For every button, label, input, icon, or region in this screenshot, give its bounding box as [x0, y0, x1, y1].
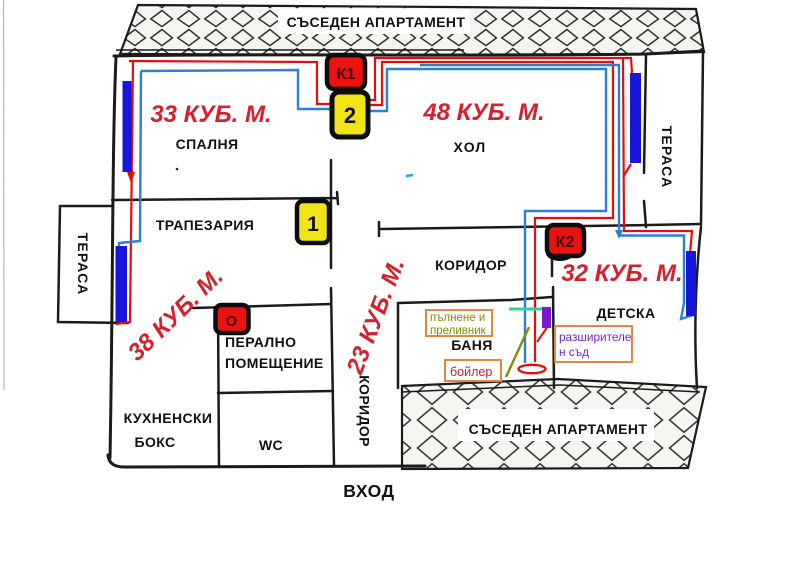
svg-text:КУХНЕНСКИ: КУХНЕНСКИ — [124, 410, 213, 426]
svg-text:СЪСЕДЕН АПАРТАМЕНТ: СЪСЕДЕН АПАРТАМЕНТ — [469, 421, 648, 437]
svg-text:ТРАПЕЗАРИЯ: ТРАПЕЗАРИЯ — [156, 217, 254, 233]
svg-text:К1: К1 — [337, 66, 356, 83]
svg-text:СПАЛНЯ: СПАЛНЯ — [176, 136, 239, 152]
svg-text:ТЕРАСА: ТЕРАСА — [659, 126, 675, 189]
svg-text:32 КУБ. М.: 32 КУБ. М. — [561, 260, 682, 287]
svg-text:WC: WC — [259, 437, 283, 453]
svg-text:К2: К2 — [556, 234, 575, 251]
svg-text:н съд: н съд — [559, 345, 589, 359]
svg-text:разширителе: разширителе — [559, 330, 632, 344]
svg-text:бойлер: бойлер — [450, 365, 492, 379]
svg-text:1: 1 — [307, 213, 319, 236]
svg-text:ПЕРАЛНО: ПЕРАЛНО — [225, 334, 296, 350]
svg-text:33 КУБ. М.: 33 КУБ. М. — [150, 101, 271, 128]
svg-text:48 КУБ. М.: 48 КУБ. М. — [422, 99, 544, 126]
svg-text:ВХОД: ВХОД — [343, 481, 394, 501]
svg-text:СЪСЕДЕН АПАРТАМЕНТ: СЪСЕДЕН АПАРТАМЕНТ — [287, 14, 466, 30]
svg-text:2: 2 — [344, 103, 356, 128]
svg-text:ХОЛ: ХОЛ — [454, 139, 487, 155]
svg-text:БАНЯ: БАНЯ — [451, 337, 492, 353]
svg-text:ТЕРАСА: ТЕРАСА — [75, 233, 91, 296]
svg-text:ДЕТСКА: ДЕТСКА — [596, 305, 655, 321]
svg-text:КОРИДОР: КОРИДОР — [357, 375, 373, 447]
svg-text:КОРИДОР: КОРИДОР — [435, 257, 507, 273]
svg-text:О: О — [226, 313, 238, 330]
svg-text:БОКС: БОКС — [134, 434, 175, 450]
svg-text:ПОМЕЩЕНИЕ: ПОМЕЩЕНИЕ — [225, 355, 324, 371]
svg-text:преливник: преливник — [430, 325, 487, 337]
svg-text:пълнене и: пълнене и — [430, 312, 485, 324]
